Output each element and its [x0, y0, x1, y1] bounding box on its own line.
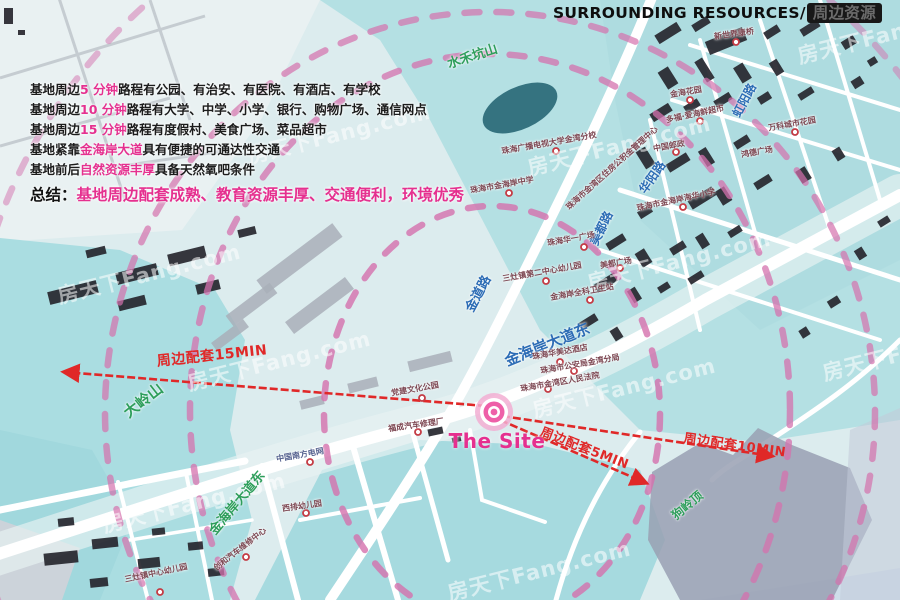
building: [167, 246, 207, 267]
building: [226, 283, 278, 326]
building: [347, 377, 379, 394]
info-panel-lines: 基地周边5 分钟路程有公园、有治安、有医院、有酒店、有学校基地周边10 分钟路程…: [30, 80, 500, 205]
site-analysis-map: 水禾坑山大岭山狗岭顶金海岸大道东金道路金海岸大道东美都路华阳路虹阳路新世界康桥金…: [0, 0, 900, 600]
building: [4, 8, 13, 24]
site-marker: [475, 393, 513, 431]
building: [90, 577, 109, 588]
page-title-zh: 周边资源: [807, 3, 882, 23]
info-line: 基地紧靠金海岸大道具有便捷的可通达性交通: [30, 140, 500, 160]
info-line: 基地周边5 分钟路程有公园、有治安、有医院、有酒店、有学校: [30, 80, 500, 100]
poi-pin-icon: [419, 395, 425, 401]
poi-pin-icon: [543, 278, 549, 284]
poi-pin-icon: [157, 589, 163, 595]
info-summary: 总结：基地周边配套成熟、教育资源丰厚、交通便利，环境优秀: [30, 183, 500, 205]
poi-pin-icon: [680, 204, 686, 210]
poi-pin-icon: [792, 129, 798, 135]
poi-pin-icon: [687, 97, 693, 103]
page-title: SURROUNDING RESOURCES/周边资源: [553, 3, 882, 23]
page-title-en: SURROUNDING RESOURCES: [553, 4, 800, 22]
poi-pin-icon: [581, 244, 587, 250]
building: [18, 30, 25, 35]
info-line: 基地前后自然资源丰厚具备天然氧吧条件: [30, 160, 500, 180]
title-divider: /: [800, 4, 806, 22]
poi-pin-icon: [307, 459, 313, 465]
building: [285, 277, 354, 334]
poi-pin-icon: [243, 554, 249, 560]
building: [407, 351, 452, 372]
building: [237, 226, 256, 238]
site-label: The Site: [449, 429, 546, 453]
poi-pin-icon: [506, 190, 512, 196]
info-line: 基地周边15 分钟路程有度假村、美食广场、菜品超市: [30, 120, 500, 140]
building: [188, 541, 204, 551]
building: [299, 395, 324, 410]
building: [152, 527, 166, 535]
poi-pin-icon: [587, 297, 593, 303]
info-line: 基地周边10 分钟路程有大学、中学、小学、银行、购物广场、通信网点: [30, 100, 500, 120]
info-panel: 基地周边5 分钟路程有公园、有治安、有医院、有酒店、有学校基地周边10 分钟路程…: [30, 80, 500, 205]
poi-pin-icon: [553, 148, 559, 154]
poi-pin-icon: [733, 39, 739, 45]
building: [58, 517, 75, 527]
